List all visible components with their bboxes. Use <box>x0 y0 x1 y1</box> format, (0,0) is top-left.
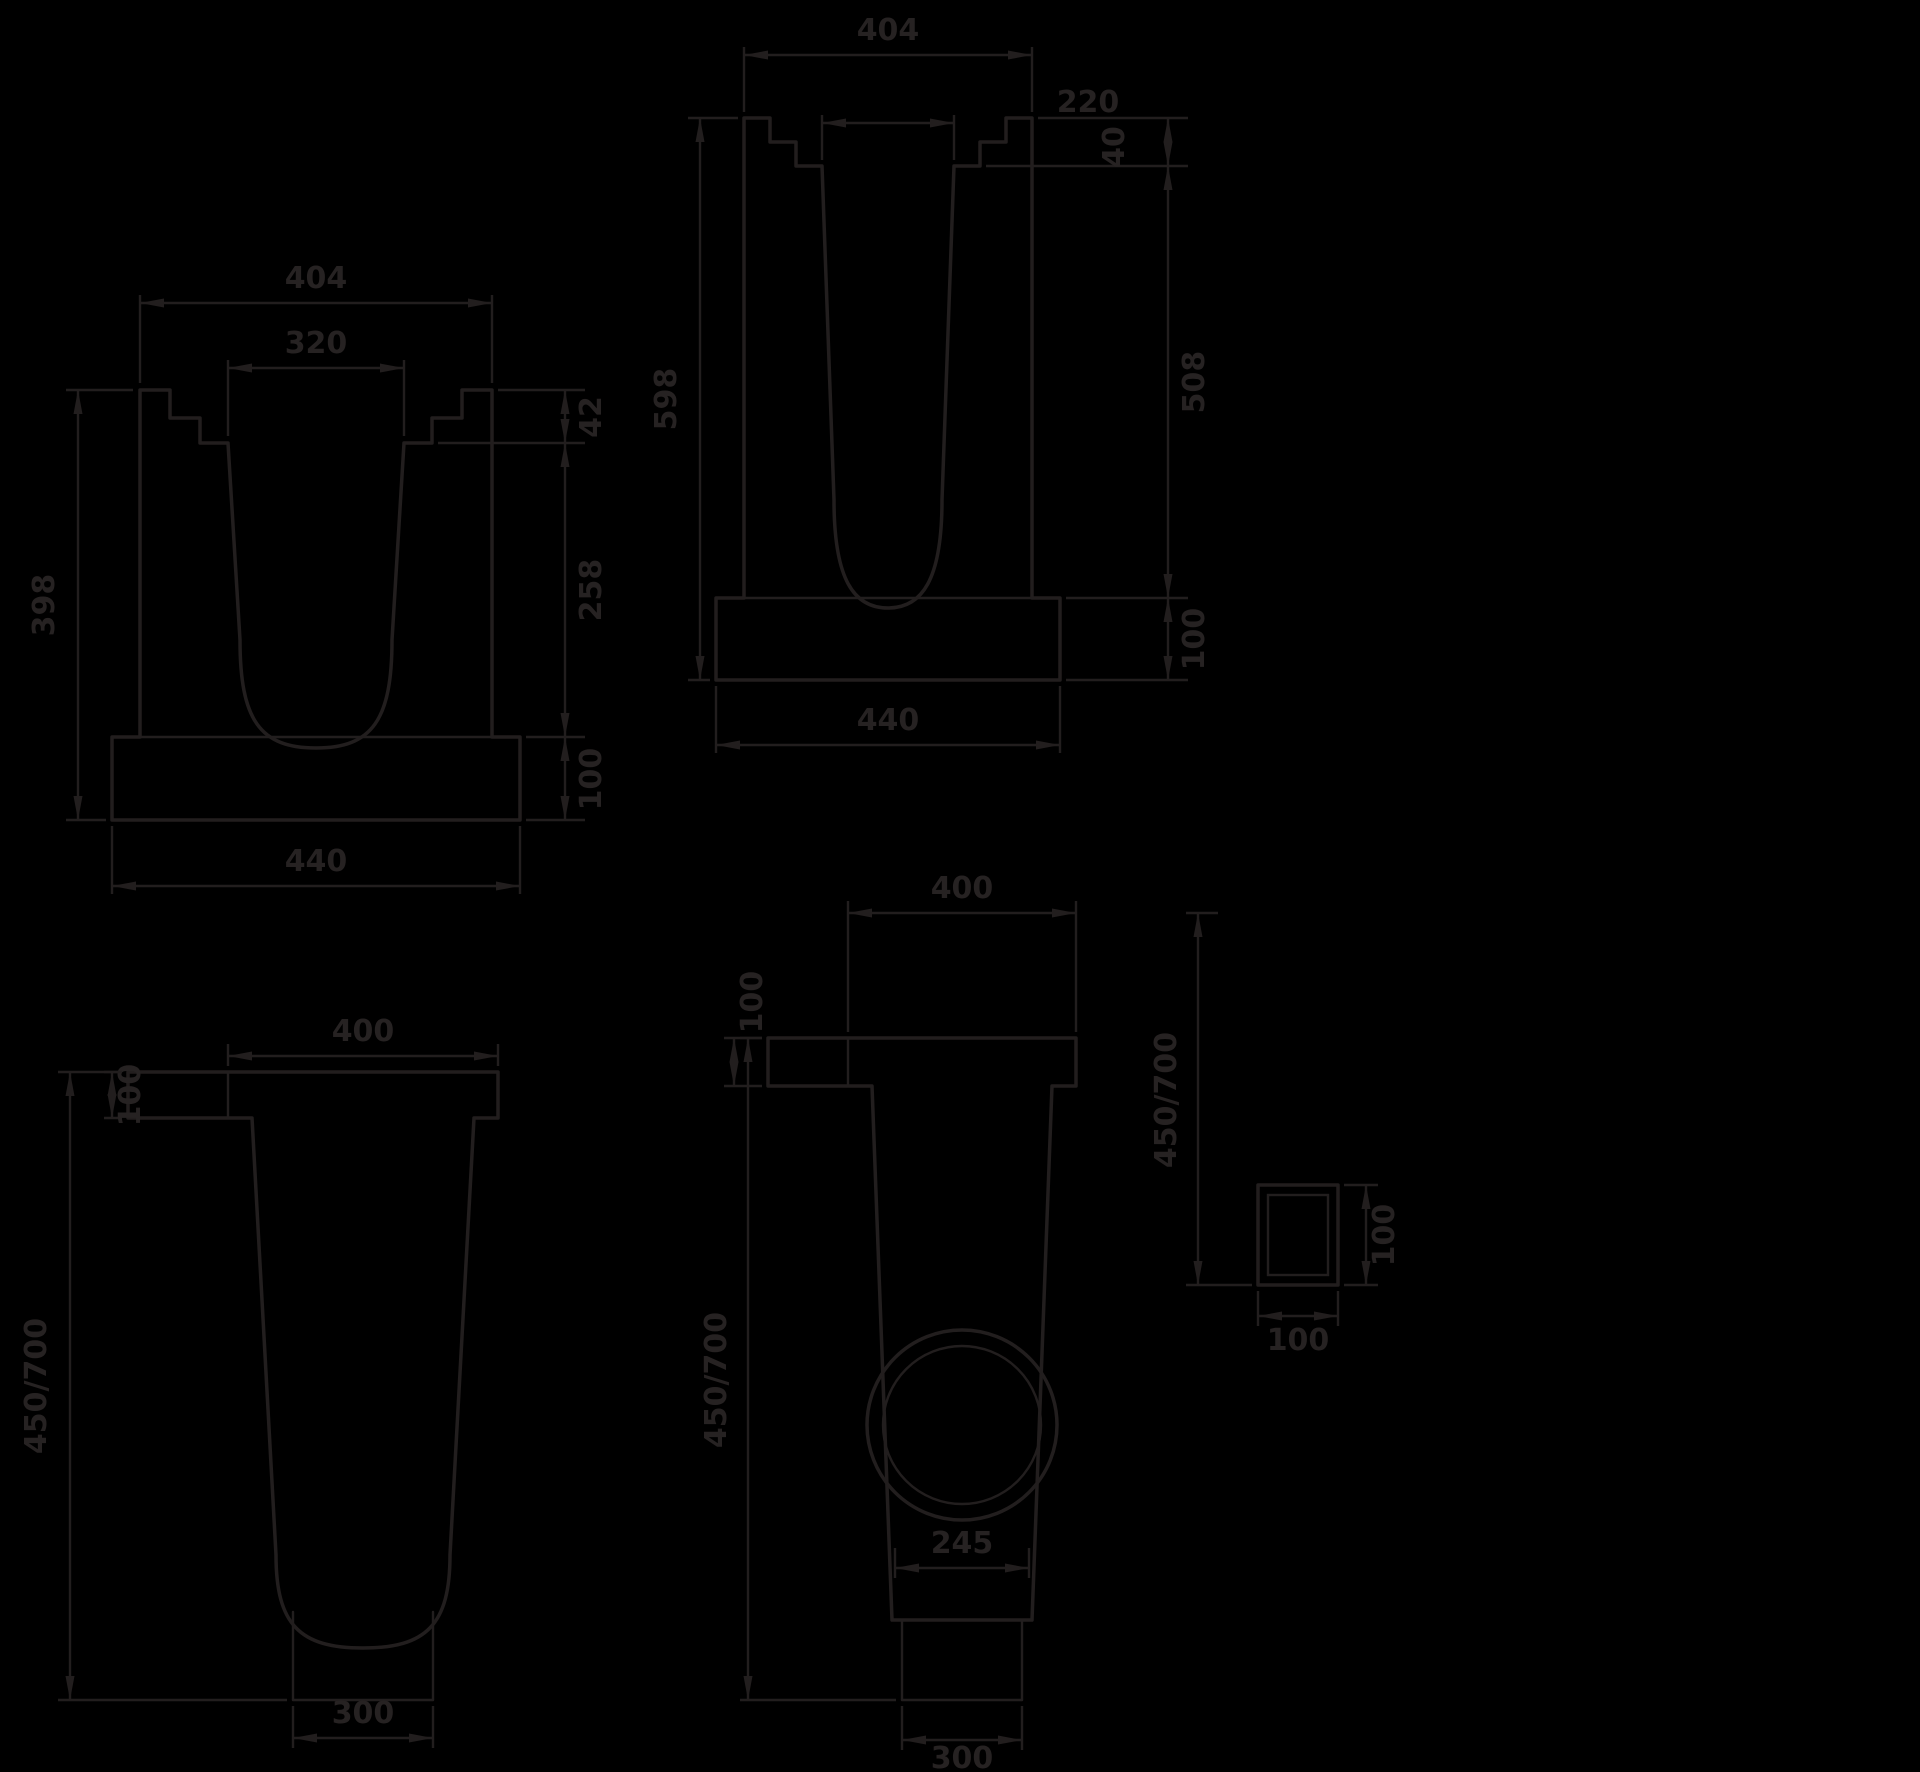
dim-outlet-height: 100 <box>1344 1185 1402 1285</box>
dim-depth-to-invert: 450/700 <box>1149 913 1252 1285</box>
dim-overall-height: 450/700 <box>19 1072 287 1700</box>
dim-label-lip-height: 40 <box>1097 126 1132 168</box>
dim-bottom-width: 300 <box>293 1696 433 1748</box>
dim-label-lip-height: 42 <box>574 396 609 438</box>
dim-label-top-width: 400 <box>332 1014 395 1049</box>
dim-label-bottom-width: 300 <box>332 1696 395 1731</box>
drawing-sheet: 404 320 398 42 258 100 <box>0 0 1920 1772</box>
sand-trap-front-view: 400 100 450/700 245 300 <box>699 871 1076 1772</box>
outlet-circle-inner <box>883 1346 1041 1504</box>
sand-trap-side-outline <box>128 1072 498 1648</box>
dim-label-bottom-width: 300 <box>931 1741 994 1772</box>
dim-outlet-diameter: 245 <box>895 1526 1029 1578</box>
dim-label-inlet-height: 100 <box>735 971 770 1034</box>
dim-label-base-height: 100 <box>574 748 609 811</box>
dim-top-width: 400 <box>228 1014 498 1066</box>
outlet-circle-outer <box>867 1330 1057 1520</box>
dim-overall-height: 598 <box>649 118 738 680</box>
outlet-square-outer <box>1258 1185 1338 1285</box>
dim-top-width: 404 <box>744 13 1032 112</box>
dim-outlet-width: 100 <box>1258 1291 1338 1358</box>
outlet-square-inner <box>1268 1195 1328 1275</box>
dim-inner-width: 320 <box>228 326 404 436</box>
dim-label-outlet-diameter: 245 <box>931 1526 994 1561</box>
dim-bottom-width: 440 <box>112 826 520 894</box>
dim-label-overall-height: 450/700 <box>699 1312 734 1448</box>
dim-label-inner-width: 320 <box>285 326 348 361</box>
dim-right-stack: 40 508 100 <box>986 118 1212 680</box>
dim-label-base-height: 100 <box>1177 608 1212 671</box>
dim-bottom-width: 440 <box>716 686 1060 753</box>
dim-label-outlet-height: 100 <box>1367 1204 1402 1267</box>
outlet-detail-view: 450/700 100 100 <box>1149 913 1402 1358</box>
sand-trap-side-view: 400 100 450/700 300 <box>19 1014 498 1748</box>
dim-label-overall-height: 598 <box>649 368 684 431</box>
dim-label-outlet-width: 100 <box>1267 1323 1330 1358</box>
dim-top-width: 404 <box>140 261 492 383</box>
dim-top-width: 400 <box>848 871 1076 1032</box>
dim-label-top-width: 404 <box>857 13 920 48</box>
channel-cross-section-tall: 404 220 598 40 508 100 <box>649 13 1212 753</box>
dim-label-overall-height: 450/700 <box>19 1318 54 1454</box>
technical-drawing: 404 320 398 42 258 100 <box>0 0 1920 1772</box>
dim-label-bottom-width: 440 <box>857 703 920 738</box>
channel-tall-outline <box>716 118 1060 680</box>
dim-label-depth-to-invert: 450/700 <box>1149 1032 1184 1168</box>
dim-overall-height: 398 <box>27 390 133 820</box>
dim-label-bottom-width: 440 <box>285 844 348 879</box>
dim-right-stack: 42 258 100 <box>438 390 609 820</box>
dim-overall-height: 450/700 <box>699 1038 896 1700</box>
dim-label-inner-depth: 508 <box>1177 351 1212 414</box>
dim-bottom-width: 300 <box>902 1706 1022 1772</box>
dim-label-top-width: 404 <box>285 261 348 296</box>
sand-trap-front-outline <box>768 1038 1076 1620</box>
dim-inner-width: 220 <box>822 85 1119 160</box>
channel-small-outline <box>112 390 520 820</box>
dim-label-inner-depth: 258 <box>574 559 609 622</box>
dim-label-top-width: 400 <box>931 871 994 906</box>
channel-cross-section-small: 404 320 398 42 258 100 <box>27 261 609 894</box>
dim-label-overall-height: 398 <box>27 574 62 637</box>
dim-label-inner-width: 220 <box>1057 85 1120 120</box>
